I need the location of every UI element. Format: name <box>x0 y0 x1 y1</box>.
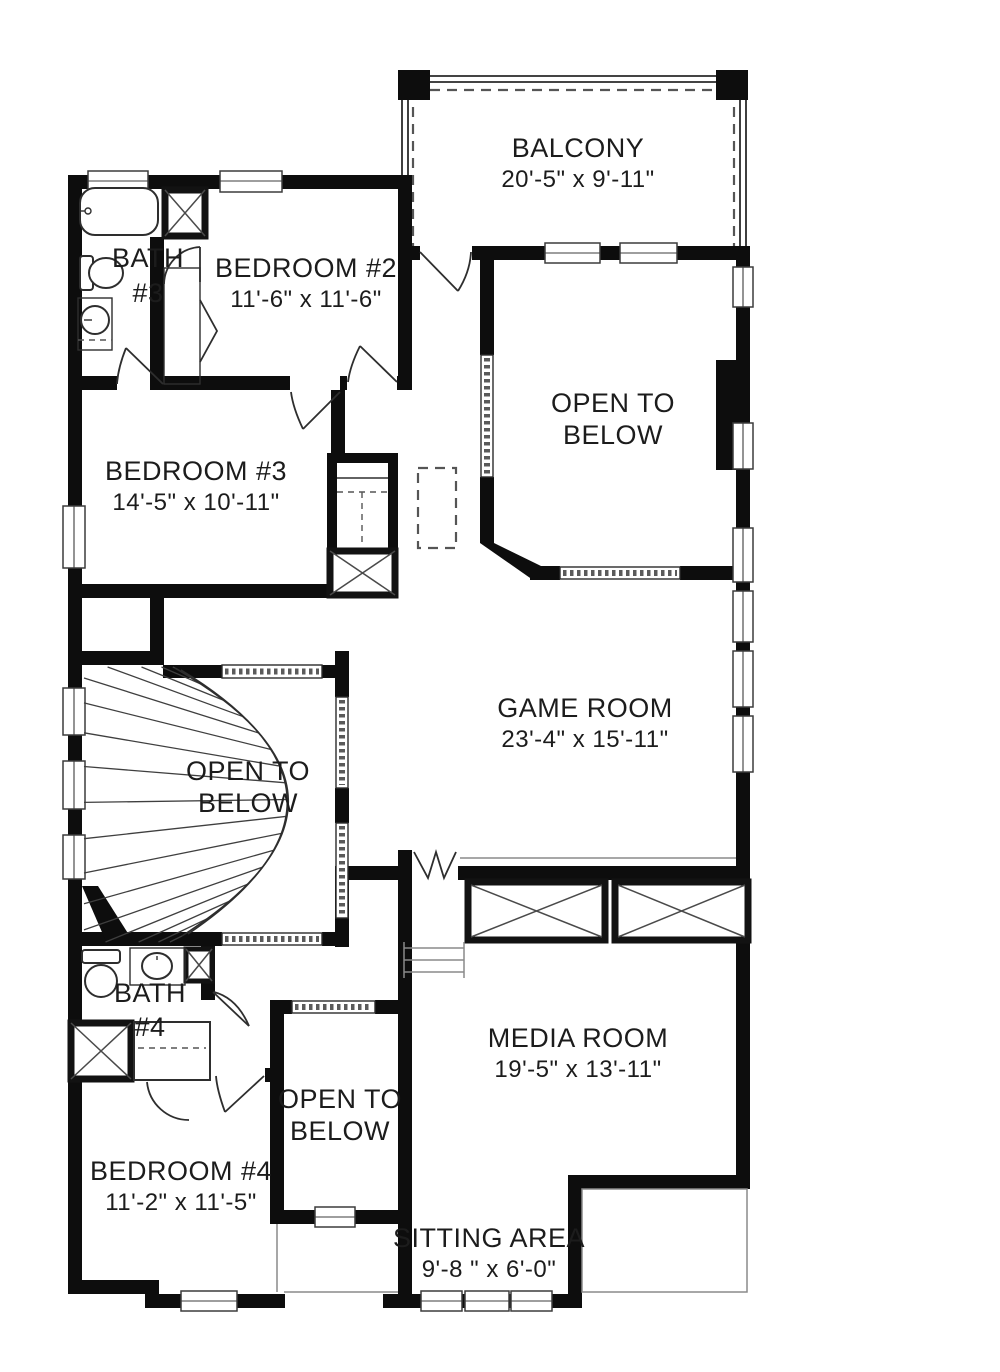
window <box>181 1291 237 1311</box>
floor-plan: BALCONY 20'-5" x 9'-11" BATH #3 BEDROOM … <box>0 0 1000 1372</box>
window <box>421 1291 462 1311</box>
room-label-media-room: MEDIA ROOM <box>488 1023 669 1053</box>
door <box>216 1076 264 1112</box>
room-dims-bedroom2: 11'-6" x 11'-6" <box>230 286 382 313</box>
room-label-bedroom4: BEDROOM #4 <box>90 1156 272 1186</box>
shower-bath4 <box>71 1023 131 1079</box>
stair-tread <box>84 833 282 873</box>
room-dims-game-room: 23'-4" x 15'-11" <box>501 726 668 753</box>
room-dims-bedroom4: 11'-2" x 11'-5" <box>105 1189 257 1216</box>
sink-bath3 <box>78 298 112 350</box>
room-label-balcony: BALCONY <box>512 133 645 163</box>
bathtub <box>80 188 158 235</box>
room-label-open-to-below-stair: OPEN TO <box>186 756 310 786</box>
window <box>620 243 677 263</box>
window <box>733 716 753 772</box>
stair-tread <box>84 816 287 838</box>
window <box>733 423 753 469</box>
linen-closet-bath4 <box>186 949 212 981</box>
room-dims-bath4: #4 <box>134 1012 165 1042</box>
media-closet-right <box>615 882 748 940</box>
closet-door-arc <box>147 1082 189 1120</box>
room-label-open-to-below-stair-2: BELOW <box>198 788 298 818</box>
window <box>733 591 753 642</box>
attic-access-dashed <box>418 468 456 548</box>
window <box>733 651 753 707</box>
stair-tread <box>84 703 272 750</box>
window <box>545 243 600 263</box>
window <box>63 761 85 809</box>
room-label-sitting-area: SITTING AREA <box>393 1223 585 1253</box>
door <box>420 252 471 291</box>
room-label-open-to-below-upper: OPEN TO <box>551 388 675 418</box>
room-label-open-to-below-upper-2: BELOW <box>563 420 663 450</box>
railing <box>336 823 348 918</box>
window <box>63 835 85 879</box>
window <box>315 1207 355 1227</box>
room-label-bath3: BATH <box>112 243 184 273</box>
room-label-game-room: GAME ROOM <box>497 693 673 723</box>
media-closet-left <box>468 882 605 940</box>
railing <box>292 1001 375 1013</box>
window <box>63 506 85 568</box>
railings <box>222 355 680 1013</box>
room-label-open-to-below-lower-2: BELOW <box>290 1116 390 1146</box>
window <box>733 267 753 307</box>
bedroom3-closet <box>337 478 388 545</box>
bedroom2-closet <box>164 268 200 384</box>
balcony-pillar <box>398 70 430 100</box>
door <box>213 992 249 1026</box>
room-label-bedroom2: BEDROOM #2 <box>215 253 397 283</box>
room-label-bedroom3: BEDROOM #3 <box>105 456 287 486</box>
railing <box>560 567 680 579</box>
window <box>511 1291 552 1311</box>
room-dims-sitting-area: 9'-8 " x 6'-0" <box>422 1256 557 1283</box>
railing <box>222 665 322 678</box>
stair-tread <box>173 667 175 668</box>
window <box>465 1291 509 1311</box>
room-dims-bedroom3: 14'-5" x 10'-11" <box>112 489 279 516</box>
stair-tread <box>84 867 263 930</box>
closet-bifold-door <box>200 300 217 362</box>
balcony-pillar <box>716 70 748 100</box>
window <box>63 688 85 735</box>
window <box>733 528 753 582</box>
window <box>220 171 282 192</box>
door <box>348 346 397 382</box>
stair-tread <box>84 850 274 904</box>
floor-plan-drawing: BALCONY 20'-5" x 9'-11" BATH #3 BEDROOM … <box>0 0 1000 1372</box>
room-dims-media-room: 19'-5" x 13'-11" <box>494 1056 661 1083</box>
room-dims-bath3: #3 <box>132 278 163 308</box>
room-label-open-to-below-lower: OPEN TO <box>278 1084 402 1114</box>
railing <box>222 933 322 945</box>
room-dims-balcony: 20'-5" x 9'-11" <box>501 166 654 193</box>
room-label-bath4: BATH <box>114 978 186 1008</box>
shower-bath3 <box>165 190 205 236</box>
railing <box>481 355 493 477</box>
bifold-door <box>414 852 456 878</box>
roof-below-outline <box>582 1189 747 1292</box>
linen-closet <box>330 551 395 595</box>
railing <box>336 697 348 788</box>
